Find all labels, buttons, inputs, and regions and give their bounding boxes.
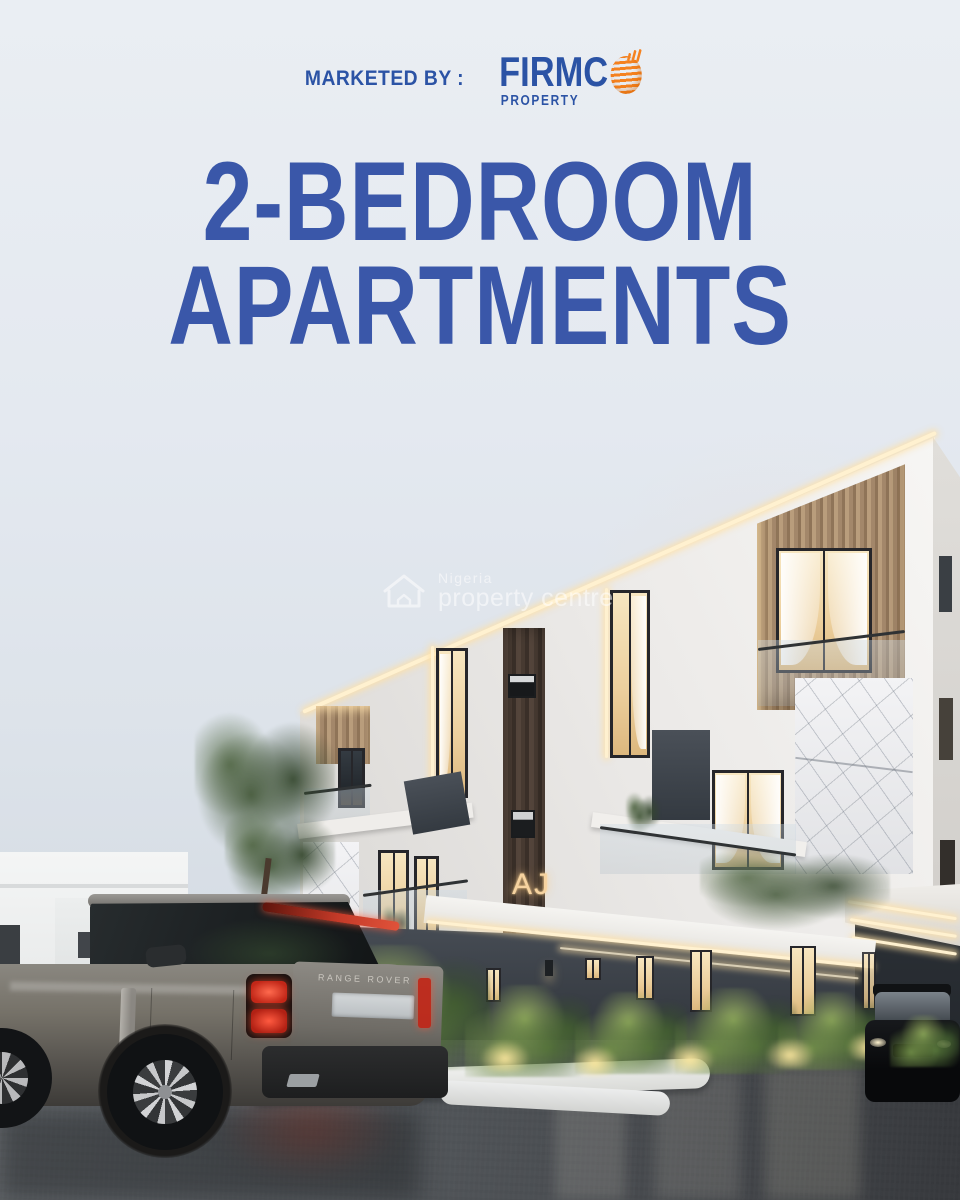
brand-name: FIRMC bbox=[499, 48, 608, 96]
rr-taillight-right bbox=[418, 978, 431, 1028]
curtain bbox=[631, 596, 646, 748]
rr-exhaust bbox=[324, 1076, 352, 1088]
garden-uplight bbox=[562, 1036, 628, 1076]
wall-lamp bbox=[545, 960, 553, 976]
tree-right bbox=[700, 848, 890, 933]
marketed-by-row: MARKETED BY : FIRMC PROPERTY bbox=[0, 48, 960, 109]
curtain bbox=[440, 654, 451, 789]
building-right-face-window bbox=[939, 698, 953, 760]
house-outline-icon bbox=[380, 570, 428, 612]
mid-dark-panel bbox=[652, 730, 710, 820]
garden-uplight bbox=[655, 1032, 725, 1072]
core-small-window bbox=[511, 810, 535, 838]
brand-lockup: FIRMC PROPERTY bbox=[499, 48, 646, 109]
marble-panel-right bbox=[795, 678, 913, 874]
watermark-line2: property centre bbox=[438, 585, 614, 611]
pavement-reflection bbox=[765, 1066, 860, 1200]
rr-taillight-lamp bbox=[251, 981, 287, 1003]
rr-hub bbox=[158, 1085, 172, 1099]
left-dark-slab bbox=[404, 771, 470, 834]
brand-suffix: PROPERTY bbox=[499, 93, 579, 109]
tall-window-center bbox=[610, 590, 650, 758]
chart-bar bbox=[636, 49, 642, 62]
garden-uplight bbox=[470, 1030, 540, 1072]
pavement-reflection bbox=[655, 1072, 740, 1200]
headline: 2-BEDROOM APARTMENTS bbox=[96, 150, 864, 358]
building-sign: AJ bbox=[512, 868, 551, 902]
hedge-right bbox=[890, 1015, 960, 1067]
flyer-canvas: AJ bbox=[0, 0, 960, 1200]
rr-mirror bbox=[145, 944, 187, 968]
headline-line2: APARTMENTS bbox=[96, 254, 864, 358]
rr-bumper bbox=[262, 1046, 448, 1098]
garden-uplight bbox=[755, 1028, 825, 1068]
rr-taillight-left bbox=[246, 974, 292, 1038]
rr-rear-wheel bbox=[107, 1034, 223, 1150]
firmco-globe-icon bbox=[610, 49, 646, 95]
building-right-face-window bbox=[939, 556, 952, 612]
ground-window bbox=[585, 958, 601, 980]
rr-rim bbox=[0, 1052, 28, 1104]
rr-taillight-lamp bbox=[251, 1009, 287, 1033]
rr-license-plate bbox=[332, 993, 415, 1020]
watermark-line1: Nigeria bbox=[438, 571, 614, 586]
marketed-by-label: MARKETED BY : bbox=[305, 67, 464, 91]
watermark: Nigeria property centre bbox=[380, 570, 614, 612]
range-rover: RANGE ROVER bbox=[0, 888, 460, 1178]
window-led-strip bbox=[605, 588, 608, 758]
headline-line1: 2-BEDROOM bbox=[96, 150, 864, 254]
rr-exhaust bbox=[286, 1074, 319, 1087]
core-small-window bbox=[508, 674, 536, 698]
black-suv-headlight bbox=[870, 1038, 886, 1047]
